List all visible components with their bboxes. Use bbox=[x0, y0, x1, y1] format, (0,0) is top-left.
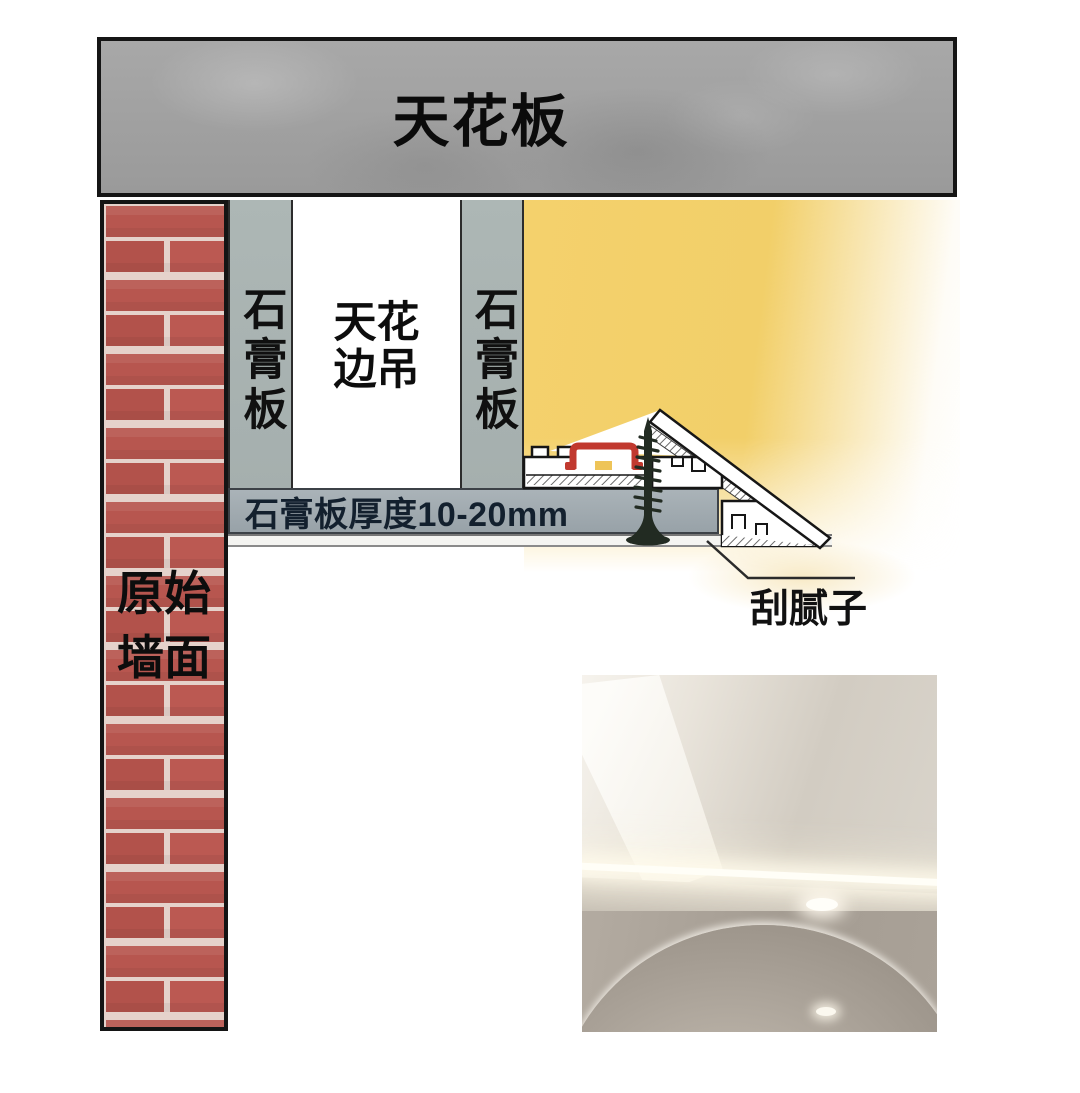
wall-label-line-2: 墙面 bbox=[104, 626, 224, 690]
led-light bbox=[595, 461, 612, 470]
putty-label: 刮腻子 bbox=[750, 578, 867, 634]
gypsum-board-right-strip: 石膏板 bbox=[462, 200, 524, 489]
original-wall: 原始 墙面 bbox=[100, 200, 228, 1031]
edge-drop-label-line-2: 边吊 bbox=[293, 347, 460, 394]
edge-drop-label-line-1: 天花 bbox=[293, 300, 460, 347]
photo-recessed-downlight bbox=[806, 898, 838, 911]
installed-ceiling-photo bbox=[582, 675, 937, 1032]
led-strip-channel bbox=[565, 446, 643, 470]
edge-drop-label: 天花 边吊 bbox=[293, 300, 460, 394]
wall-label-line-1: 原始 bbox=[104, 562, 224, 626]
wall-label: 原始 墙面 bbox=[104, 562, 224, 690]
ceiling-edge-drop-strip: 天花 边吊 bbox=[293, 200, 462, 489]
aluminum-profile-drawing bbox=[520, 405, 920, 555]
gypsum-board-right-label: 石膏板 bbox=[460, 286, 524, 489]
ceiling-slab: 天花板 bbox=[97, 37, 957, 197]
ceiling-label: 天花板 bbox=[393, 76, 570, 158]
gypsum-board-left-label: 石膏板 bbox=[229, 286, 293, 489]
gypsum-board-left-strip: 石膏板 bbox=[228, 200, 293, 489]
diagram-canvas: 天花板 原始 墙面 石膏板 bbox=[0, 0, 1080, 1093]
